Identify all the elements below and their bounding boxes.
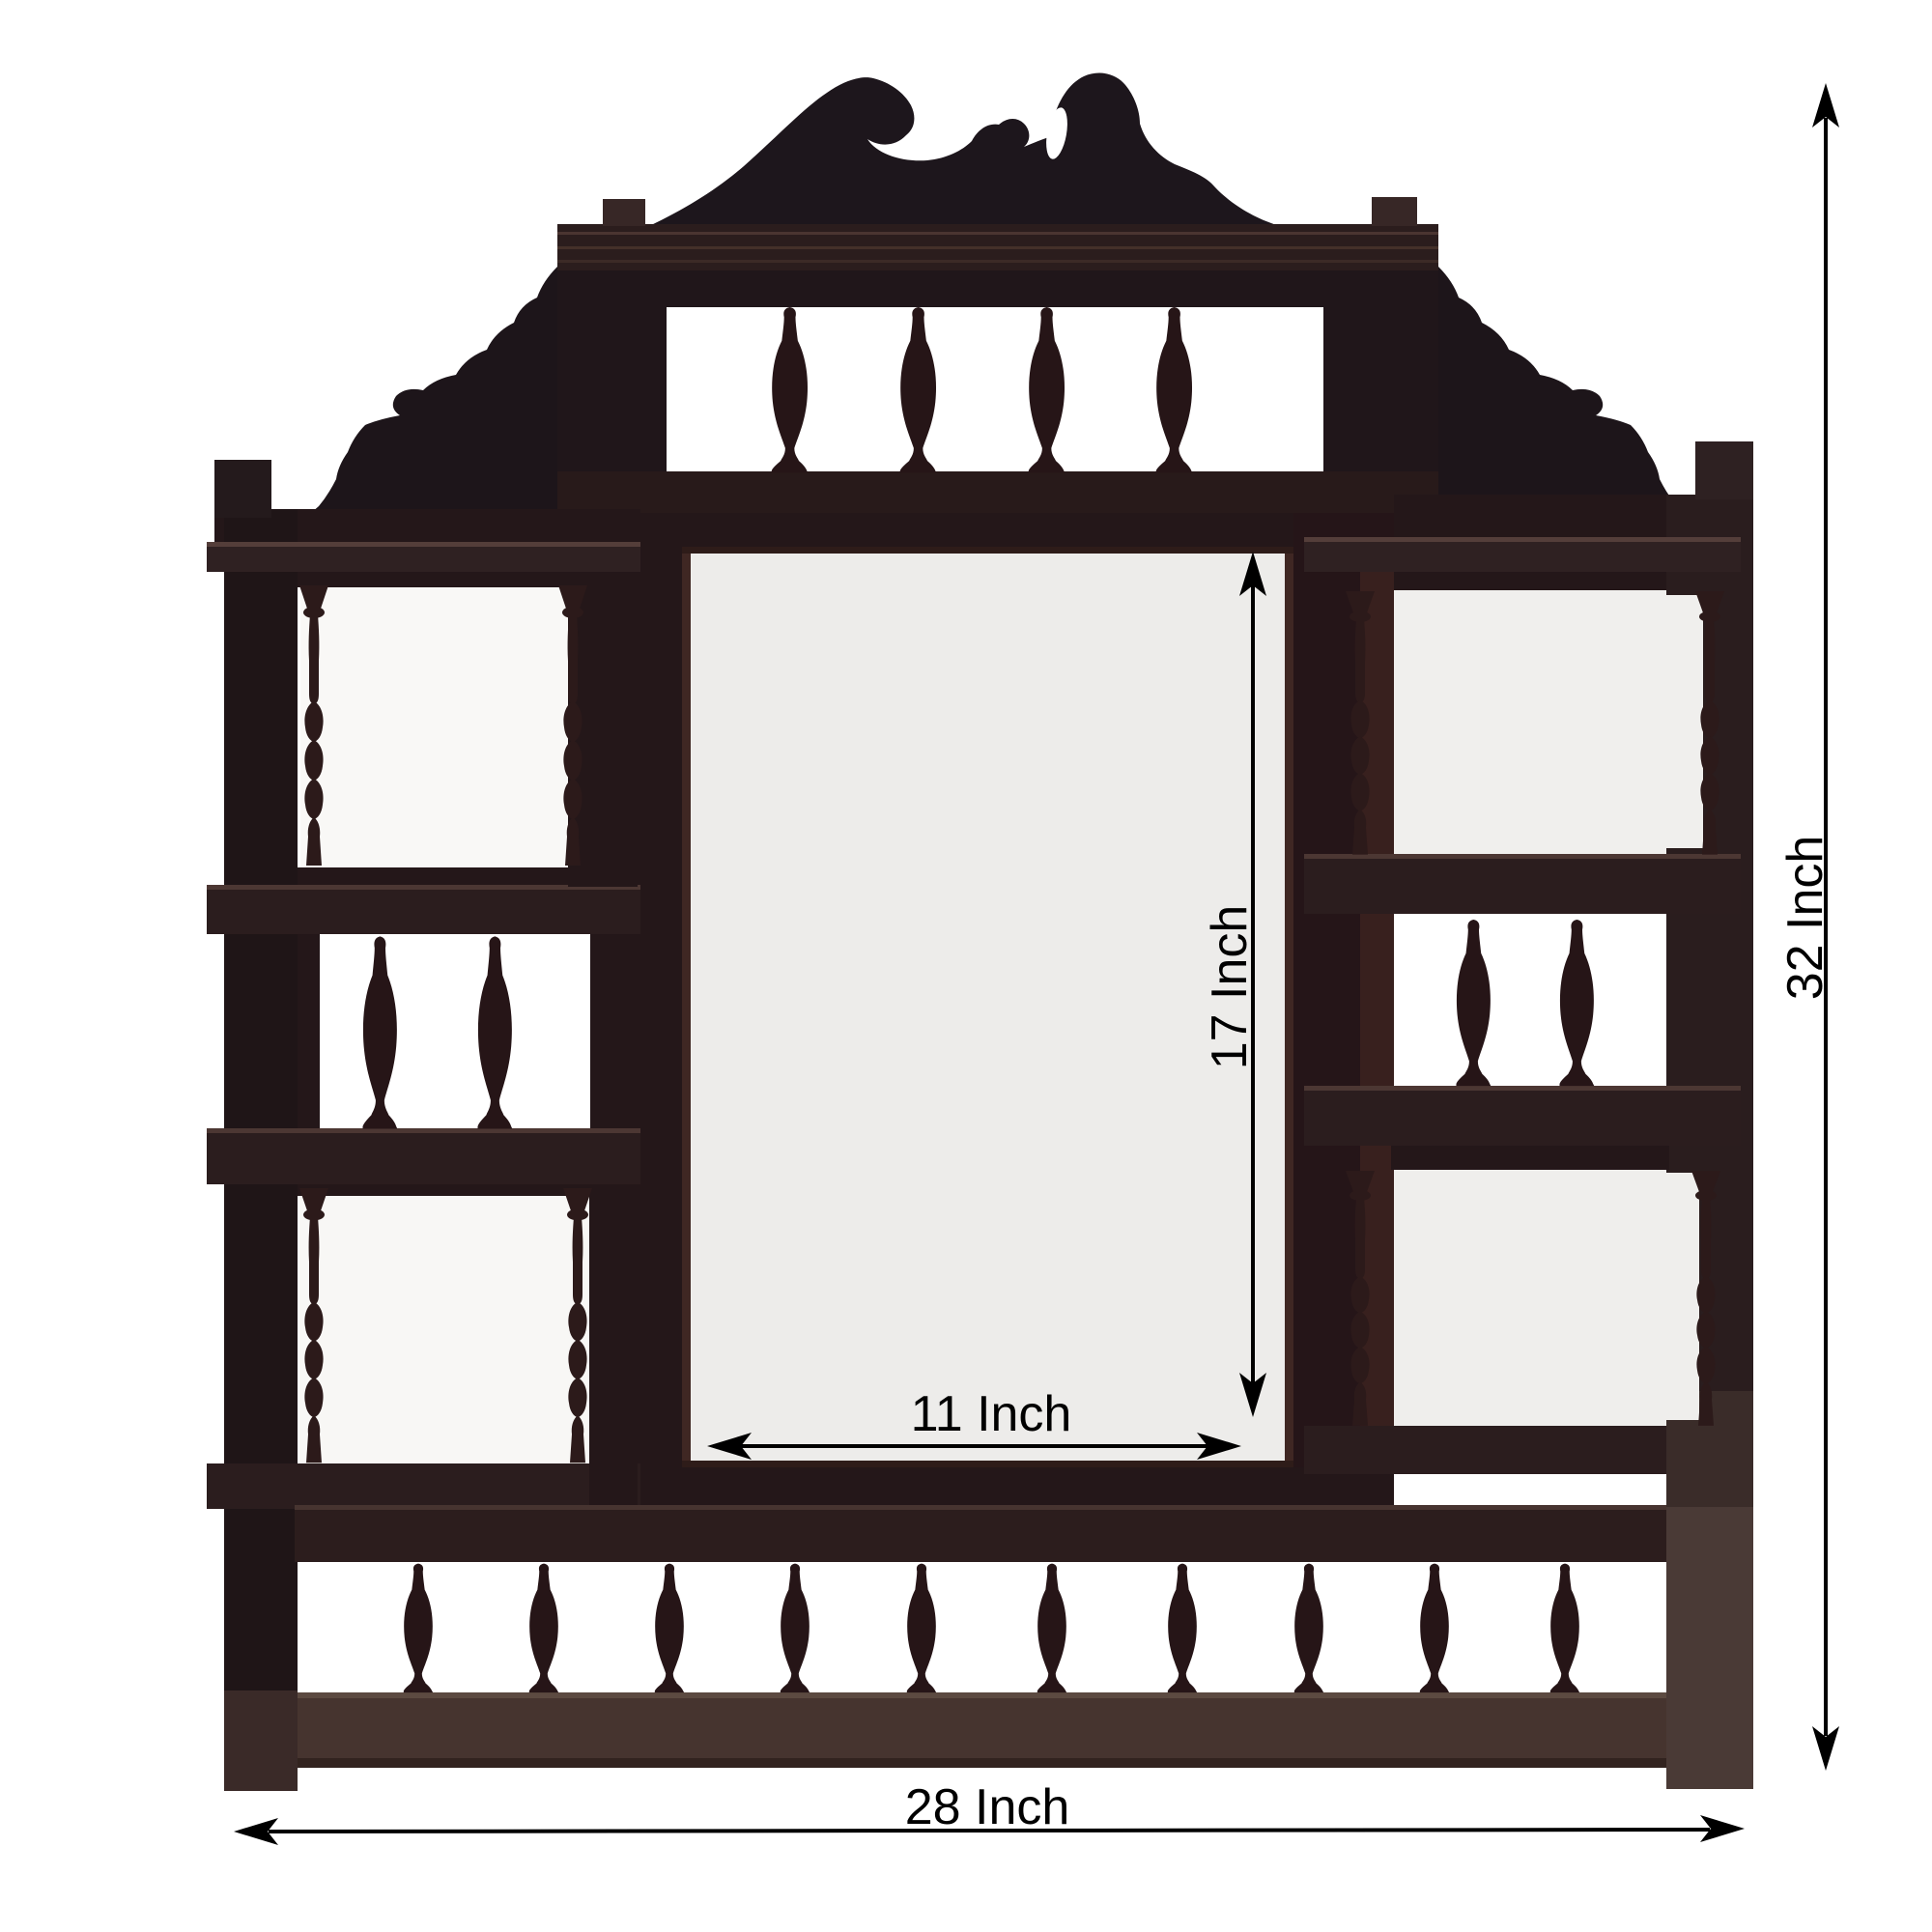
svg-text:11 Inch: 11 Inch <box>911 1386 1072 1442</box>
svg-text:32 Inch: 32 Inch <box>1777 836 1833 1001</box>
svg-text:17 Inch: 17 Inch <box>1202 905 1258 1070</box>
svg-text:28 Inch: 28 Inch <box>905 1779 1070 1835</box>
